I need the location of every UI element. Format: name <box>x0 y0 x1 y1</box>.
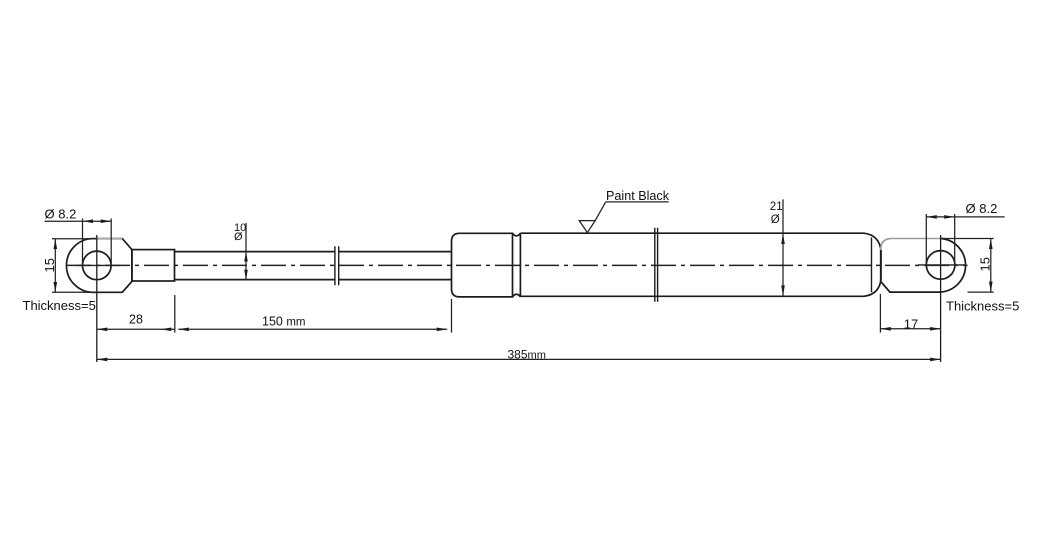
svg-text:15: 15 <box>978 257 993 271</box>
svg-text:Ø: Ø <box>234 231 243 243</box>
svg-text:Ø 8.2: Ø 8.2 <box>45 206 77 221</box>
svg-text:28: 28 <box>129 313 143 327</box>
svg-text:Thickness=5: Thickness=5 <box>23 298 96 313</box>
svg-text:Ø 8.2: Ø 8.2 <box>966 201 998 216</box>
svg-text:17: 17 <box>904 316 918 331</box>
svg-text:21: 21 <box>770 201 783 213</box>
svg-text:Thickness=5: Thickness=5 <box>946 299 1019 314</box>
svg-text:Ø: Ø <box>771 214 780 226</box>
svg-text:15: 15 <box>42 258 57 272</box>
svg-text:Paint Black: Paint Black <box>606 189 670 203</box>
svg-text:385mm: 385mm <box>508 347 546 361</box>
svg-text:150 mm: 150 mm <box>262 315 306 329</box>
